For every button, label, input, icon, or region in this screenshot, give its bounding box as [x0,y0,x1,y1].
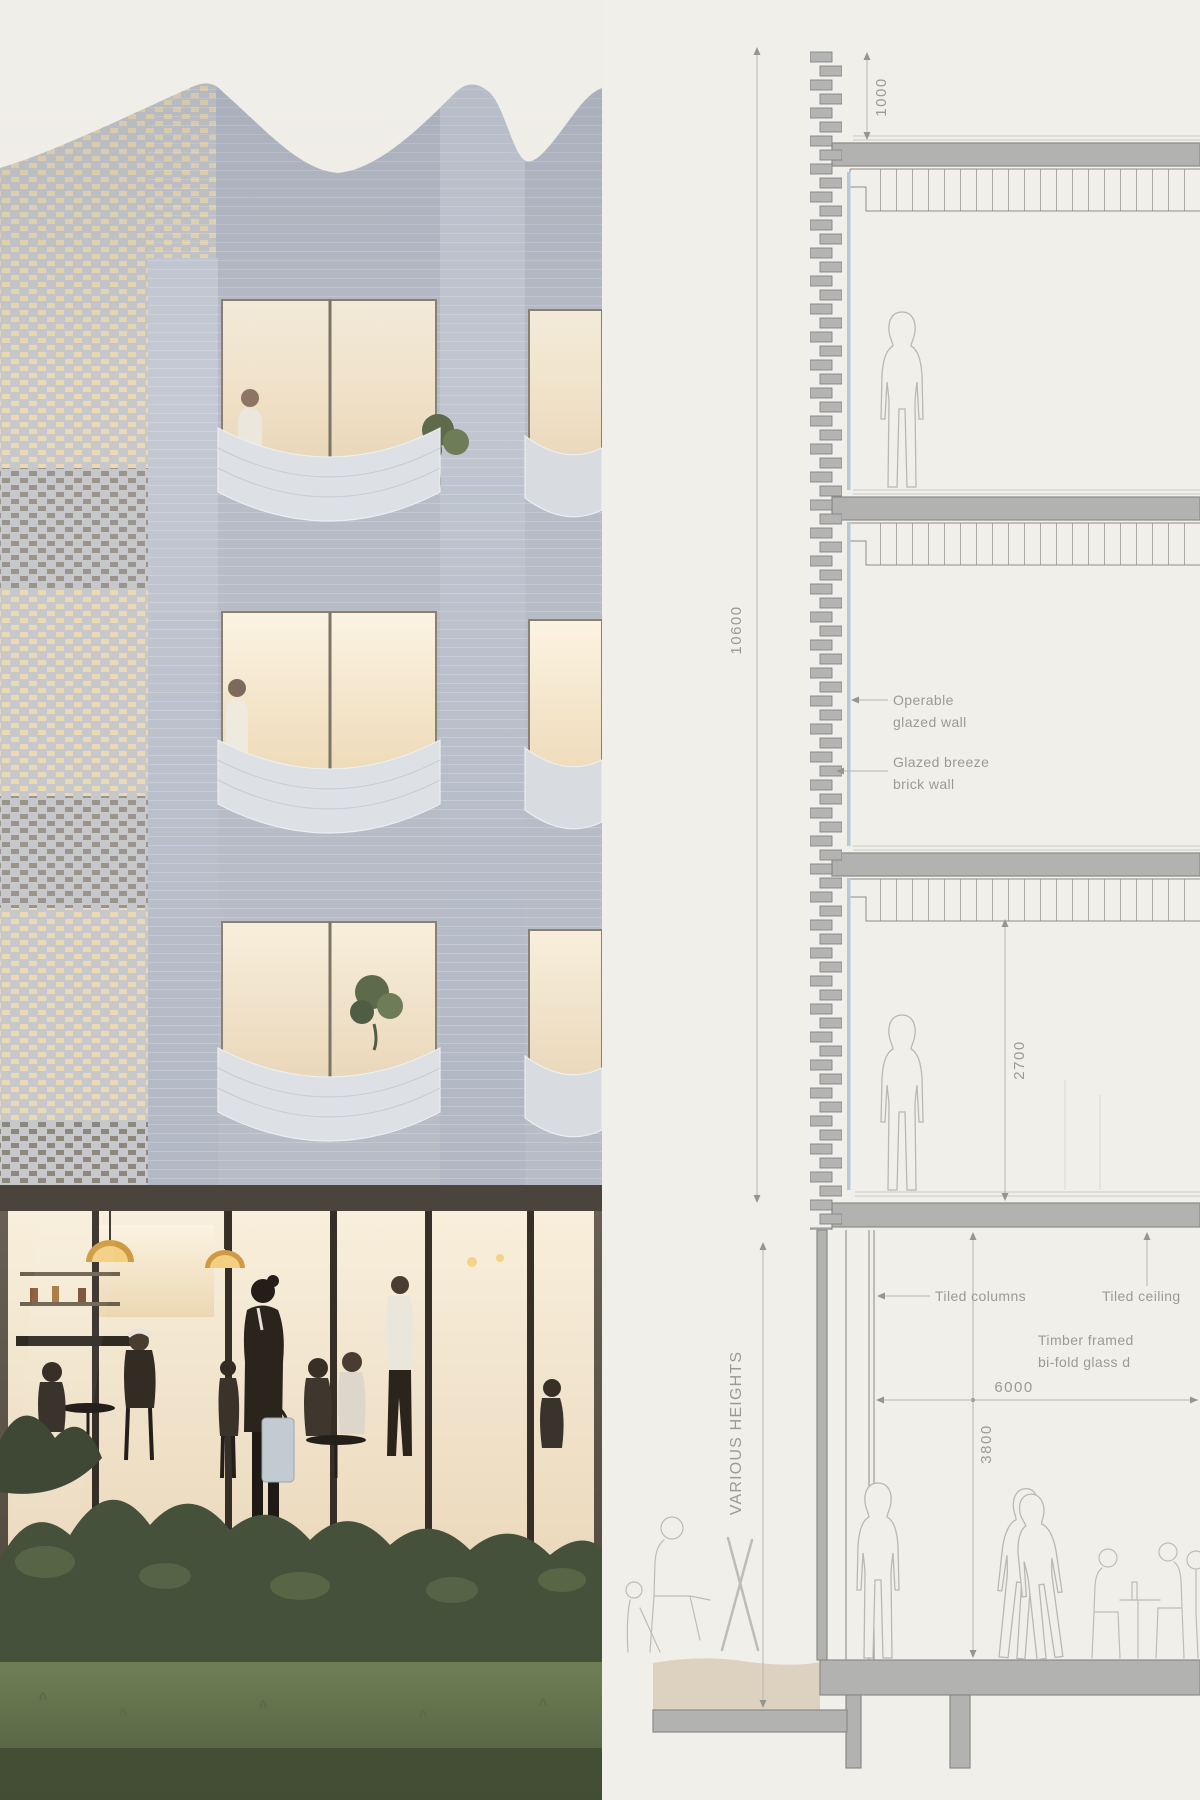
window-bay-right [529,310,602,1110]
architectural-presentation-board: 1000 10600 2700 3800 6000 [0,0,1200,1800]
floor-slab-level2 [832,490,1200,565]
lawn [0,1662,602,1800]
soil-fill [653,1658,820,1712]
dim-2700-text: 2700 [1011,1040,1028,1079]
section-drawing-svg: 1000 10600 2700 3800 6000 [602,0,1200,1800]
breeze-brick-wall [810,50,842,1230]
label-text: Operable [893,692,954,708]
label-text: Tiled columns [935,1288,1026,1304]
label-text: bi-fold glass d [1038,1354,1130,1370]
various-heights-text: VARIOUS HEIGHTS [728,1351,745,1515]
facade-photo-rendering [0,0,602,1800]
label-text: Glazed breeze [893,754,989,770]
label-text: glazed wall [893,714,967,730]
dim-overall-text: 10600 [728,605,745,654]
floor-slab-level1 [832,846,1200,921]
glazed-wall-line [847,172,851,1190]
label-text: Tiled ceiling [1102,1288,1181,1304]
tote-bag [262,1408,294,1482]
dim-parapet-text: 1000 [873,77,890,116]
dim-6000-text: 6000 [994,1379,1033,1396]
ground-pier [817,1230,827,1660]
floor-slab-level3 [832,136,1200,211]
facade-rendering-svg [0,0,602,1800]
label-text: brick wall [893,776,955,792]
light-bulb [467,1257,477,1267]
label-text: Timber framed [1038,1332,1134,1348]
light-bulb [496,1254,504,1262]
section-drawing-panel: 1000 10600 2700 3800 6000 [602,0,1200,1800]
dim-3800-text: 3800 [978,1424,995,1463]
